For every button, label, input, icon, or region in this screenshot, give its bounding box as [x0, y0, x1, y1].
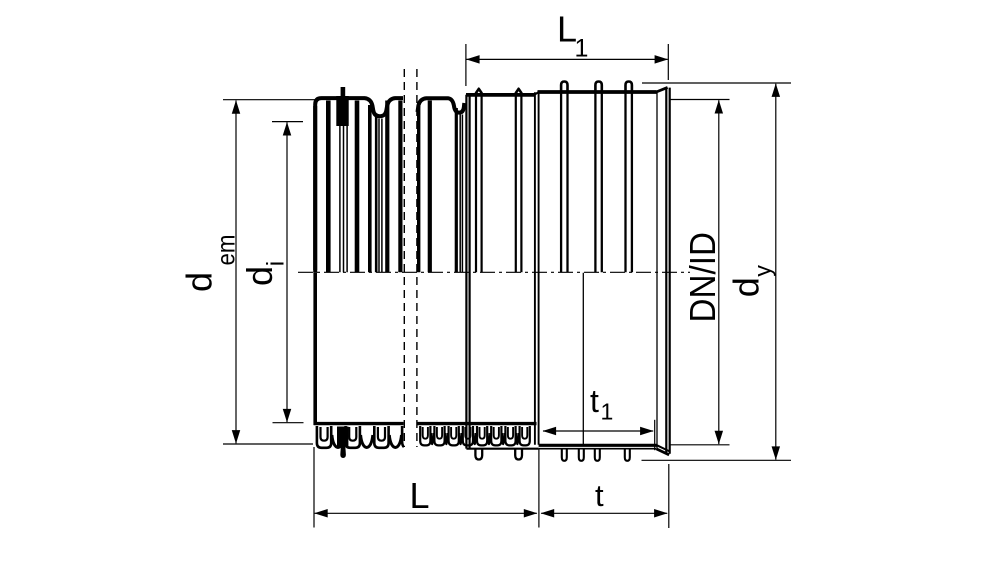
svg-text:i: i [263, 261, 290, 266]
svg-text:DN/ID: DN/ID [682, 232, 723, 323]
svg-text:d: d [179, 272, 220, 292]
svg-text:em: em [213, 235, 241, 266]
svg-text:t: t [595, 478, 604, 513]
svg-text:y: y [750, 265, 776, 277]
svg-text:d: d [726, 277, 767, 297]
svg-text:1: 1 [601, 399, 614, 425]
svg-text:t: t [590, 383, 599, 419]
svg-text:L: L [410, 475, 430, 516]
svg-text:d: d [239, 266, 280, 286]
svg-text:1: 1 [575, 35, 589, 63]
